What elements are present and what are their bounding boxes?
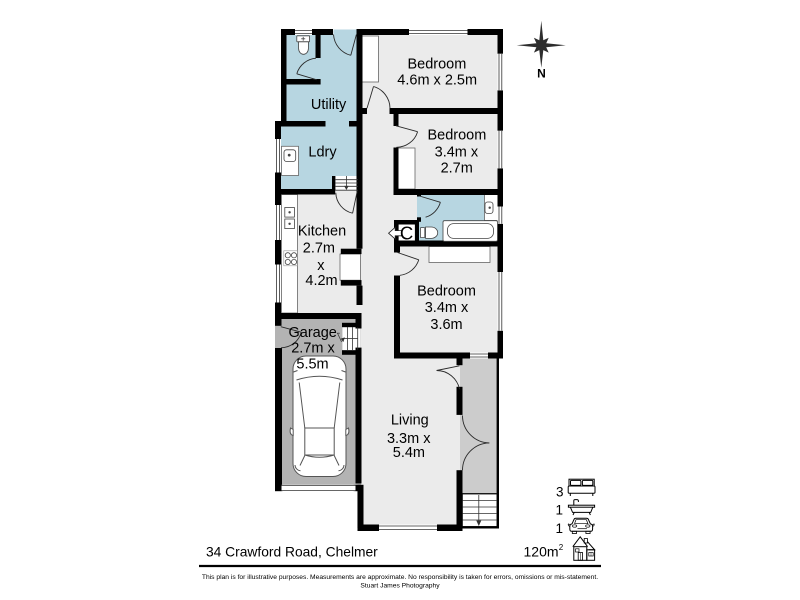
svg-text:3.6m: 3.6m	[430, 317, 462, 333]
svg-text:2.7m x: 2.7m x	[291, 341, 335, 357]
svg-text:Bedroom: Bedroom	[407, 56, 466, 72]
svg-text:3: 3	[556, 484, 564, 499]
svg-text:Garage: Garage	[289, 325, 337, 341]
svg-text:Ldry: Ldry	[308, 145, 337, 161]
svg-text:Kitchen: Kitchen	[298, 224, 346, 240]
svg-text:This plan is for illustrative: This plan is for illustrative purposes. …	[202, 574, 598, 581]
svg-text:2: 2	[559, 543, 564, 552]
svg-text:1: 1	[555, 521, 563, 536]
svg-text:x: x	[317, 258, 325, 274]
svg-text:2.7m: 2.7m	[441, 161, 473, 177]
svg-text:3.4m x: 3.4m x	[435, 144, 479, 160]
svg-text:3.4m x: 3.4m x	[425, 300, 469, 316]
svg-text:4.2m: 4.2m	[305, 273, 337, 289]
svg-text:Living: Living	[391, 413, 429, 429]
svg-text:N: N	[537, 67, 546, 81]
svg-text:5.4m: 5.4m	[393, 445, 425, 461]
svg-text:Bedroom: Bedroom	[417, 284, 476, 300]
svg-text:5.5m: 5.5m	[296, 356, 328, 372]
svg-text:Utility: Utility	[311, 97, 347, 113]
svg-text:120m: 120m	[524, 544, 559, 560]
svg-text:C: C	[400, 223, 413, 244]
svg-text:34 Crawford Road, Chelmer: 34 Crawford Road, Chelmer	[206, 544, 378, 559]
svg-text:2.7m: 2.7m	[303, 241, 335, 257]
svg-text:Bedroom: Bedroom	[427, 127, 486, 143]
svg-text:1: 1	[555, 503, 563, 518]
svg-text:4.6m x 2.5m: 4.6m x 2.5m	[397, 73, 477, 89]
svg-text:Stuart James Photography: Stuart James Photography	[360, 583, 440, 590]
